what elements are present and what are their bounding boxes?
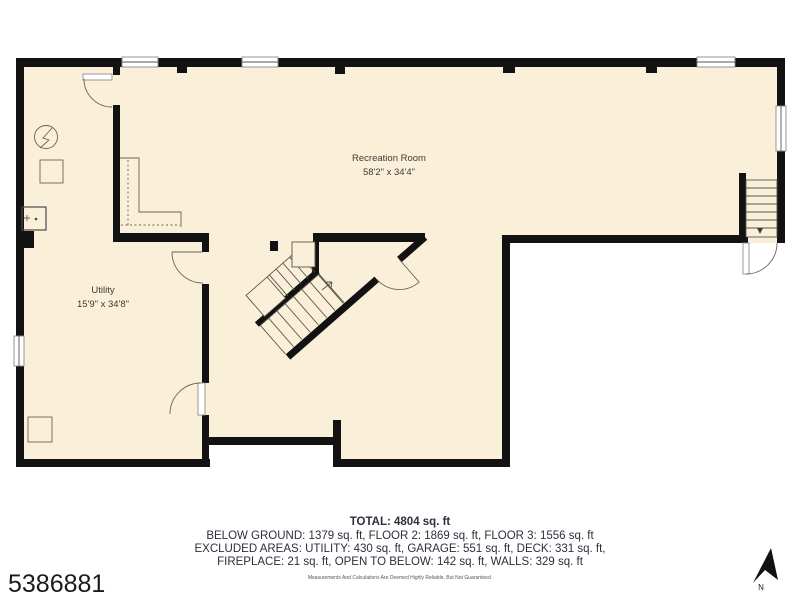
window-icon [242, 57, 278, 67]
stair-top-landing [292, 242, 315, 267]
summary-disclaimer: Measurements And Calculations Are Deemed… [308, 575, 492, 581]
wall-stair-top [313, 233, 425, 242]
window-icon [697, 57, 735, 67]
wall-utility-top [113, 233, 209, 242]
room-dimensions-utility: 15'9" x 34'8" [77, 299, 129, 310]
wall-tab-1 [177, 67, 187, 73]
window-icon [776, 106, 786, 151]
summary-line-1: BELOW GROUND: 1379 sq. ft, FLOOR 2: 1869… [206, 530, 594, 542]
compass-label: N [758, 583, 764, 592]
wall-interior-left-seg1 [113, 67, 120, 75]
summary-line-2: EXCLUDED AREAS: UTILITY: 430 sq. ft, GAR… [195, 543, 606, 555]
floor-plan-page: Recreation Room 58'2" x 34'4" Utility 15… [0, 0, 800, 600]
stair-post [270, 241, 278, 251]
wall-right-stair-side [739, 173, 746, 238]
wall-tab-3 [503, 65, 515, 73]
wall-middle-step-top [202, 437, 341, 445]
door-exit-right-icon [743, 243, 777, 274]
area-summary: TOTAL: 4804 sq. ft BELOW GROUND: 1379 sq… [195, 516, 606, 581]
wall-middle-right [502, 235, 510, 467]
compass: N [753, 548, 778, 592]
wall-notch-left [24, 231, 34, 248]
wall-interior-left-seg2 [113, 105, 120, 233]
wall-tab-2 [335, 67, 345, 74]
room-name-utility: Utility [91, 285, 114, 296]
building-footprint [16, 58, 785, 467]
room-name-recreation: Recreation Room [352, 153, 426, 164]
wall-utility-right-seg1 [202, 242, 209, 252]
floor-plan-drawing: Recreation Room 58'2" x 34'4" Utility 15… [0, 0, 800, 600]
straight-staircase [746, 180, 777, 237]
window-icon [14, 336, 24, 366]
window-icon [122, 57, 158, 67]
listing-id: 5386881 [8, 570, 105, 598]
north-arrow-icon [753, 548, 778, 583]
summary-line-3: FIREPLACE: 21 sq. ft, OPEN TO BELOW: 142… [217, 556, 584, 568]
wall-utility-right-seg2 [202, 284, 209, 383]
room-dimensions-recreation: 58'2" x 34'4" [363, 167, 415, 178]
summary-total: TOTAL: 4804 sq. ft [350, 516, 451, 528]
wall-left [16, 58, 24, 467]
wall-utility-bottom [16, 459, 210, 467]
wall-middle-bottom [333, 459, 510, 467]
wall-recroom-bottom [502, 235, 748, 243]
wall-tab-4 [646, 65, 657, 73]
